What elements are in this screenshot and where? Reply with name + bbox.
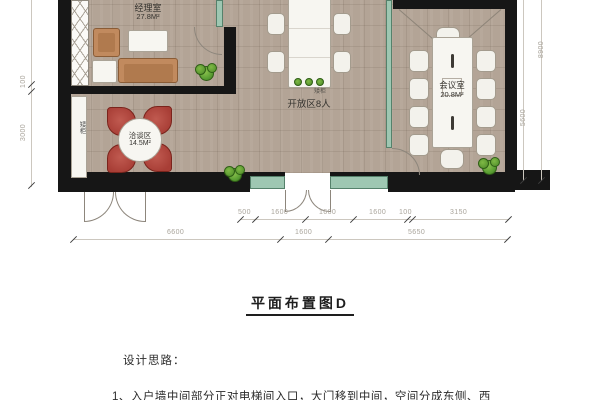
dim-6600: 6600 — [167, 229, 184, 236]
sheet-title: 平面布置图D — [246, 295, 354, 316]
dim-row1-line — [240, 219, 508, 220]
dim-5650: 5650 — [408, 229, 425, 236]
open-table-line2 — [289, 57, 330, 58]
open-area-table — [288, 0, 331, 88]
open-chair-r2 — [333, 51, 351, 73]
manager-side-table — [92, 60, 117, 83]
wall-bottom-right — [388, 172, 515, 192]
door-left-arc-a — [84, 192, 114, 222]
manager-sofa-seat — [124, 64, 173, 82]
negotiation-room-name: 洽谈区 — [119, 132, 161, 141]
plant-dot-2 — [305, 78, 313, 86]
window-right — [330, 176, 388, 189]
manager-armchair-seat — [98, 33, 115, 52]
dim-left-3000: 3000 — [20, 124, 27, 141]
wall-divider-vertical — [224, 27, 236, 94]
low-cabinet-side-label: 矮柜 — [76, 121, 86, 134]
dim-1600c: 1600 — [369, 209, 386, 216]
manager-sofa — [118, 58, 178, 83]
low-cabinet-center-label: 矮柜 — [314, 86, 326, 95]
meeting-chair-r1 — [476, 50, 496, 72]
negotiation-round-table: 洽谈区 14.5M² — [118, 118, 162, 162]
dim-tick — [28, 182, 35, 189]
dim-left-100: 100 — [20, 75, 27, 88]
dim-5600: 5600 — [520, 109, 527, 126]
open-chair-l2 — [267, 51, 285, 73]
door-left-leaf-b — [145, 192, 146, 222]
plant-symbol-meeting — [482, 160, 497, 175]
manager-door-panel — [216, 0, 223, 27]
dim-tick — [504, 236, 511, 243]
plant-symbol-entry-left — [228, 168, 242, 182]
door-left-arc-b — [115, 192, 145, 222]
wardrobe-cabinet — [71, 0, 89, 86]
open-chair-l1 — [267, 13, 285, 35]
open-chair-r1 — [333, 13, 351, 35]
manager-armchair — [93, 28, 120, 57]
dim-8900: 8900 — [538, 41, 545, 58]
dim-1600d: 1600 — [295, 229, 312, 236]
manager-coffee-table — [128, 30, 168, 52]
wall-meeting-top-screen — [393, 0, 509, 9]
dim-3150: 3150 — [450, 209, 467, 216]
wall-divider-horizontal — [58, 86, 236, 94]
manager-room-label: 经理室 27.8M² — [108, 3, 188, 22]
dim-right-inner-line — [523, 0, 524, 181]
plant-symbol-manager — [199, 66, 214, 81]
plant-dot-3 — [316, 78, 324, 86]
floor-plan-sheet: 矮柜 经理室 27.8M² 洽谈区 14.5M² 矮柜 开放区8人 — [0, 0, 600, 400]
dim-100: 100 — [399, 209, 412, 216]
dim-row2-line — [73, 239, 507, 240]
manager-room-area: 27.8M² — [108, 13, 188, 22]
open-area-label: 开放区8人 — [264, 100, 354, 111]
plant-dot-1 — [294, 78, 302, 86]
wall-left — [58, 0, 71, 192]
meeting-chair-bottom — [440, 149, 464, 169]
meeting-chair-r2 — [476, 78, 496, 100]
open-table-line1 — [289, 28, 330, 29]
meeting-chair-l4 — [409, 134, 429, 156]
dim-tick — [505, 216, 512, 223]
notes-item-1: 1、入户墙中间部分正对电梯间入口，大门移到中间，空间分成东侧、西 — [112, 388, 491, 400]
glass-partition-meeting — [386, 0, 392, 148]
mic-1 — [451, 54, 454, 68]
notes-heading: 设计思路： — [123, 352, 186, 368]
dim-1600a: 1600 — [271, 209, 288, 216]
meeting-chair-r3 — [476, 106, 496, 128]
meeting-chair-l3 — [409, 106, 429, 128]
wall-right — [505, 0, 517, 175]
mic-2 — [451, 116, 454, 130]
dim-500: 500 — [238, 209, 251, 216]
meeting-chair-l1 — [409, 50, 429, 72]
negotiation-room-area: 14.5M² — [119, 140, 161, 148]
dim-right-outer-line — [541, 0, 542, 181]
dim-1600b: 1600 — [319, 209, 336, 216]
entry-door-arc-a — [285, 190, 307, 212]
meeting-chair-r4 — [476, 134, 496, 156]
low-cabinet-side: 矮柜 — [71, 96, 87, 178]
meeting-chair-l2 — [409, 78, 429, 100]
title-row: 平面布置图D — [0, 293, 600, 313]
window-left — [250, 176, 285, 189]
wall-corner-block — [505, 170, 550, 190]
dim-left-line — [31, 0, 32, 187]
